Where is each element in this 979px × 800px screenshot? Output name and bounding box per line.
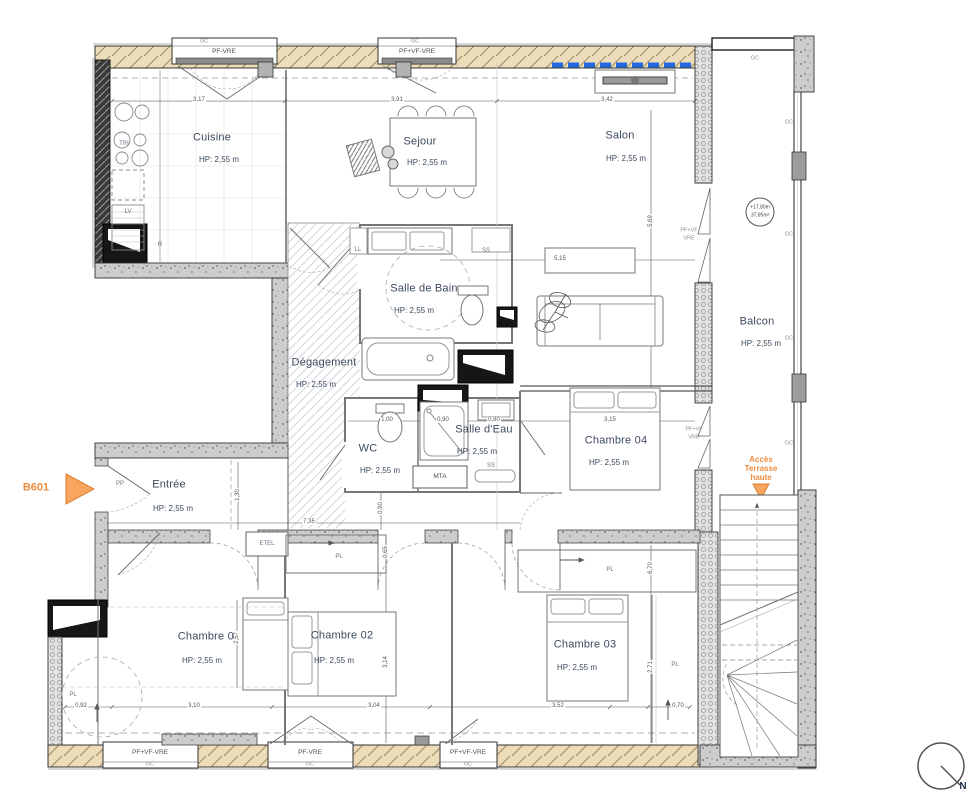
salon-furniture bbox=[534, 70, 675, 346]
ll-label: LL bbox=[355, 247, 362, 253]
window-label-bottom1: PF+VF-VRE bbox=[132, 750, 168, 757]
room-hp-salle-de-bain: HP: 2,55 m bbox=[394, 307, 434, 315]
level-area: 37,85m² bbox=[751, 214, 769, 219]
pp-label: PP bbox=[116, 481, 124, 487]
room-label-sejour: Sejour bbox=[404, 137, 437, 148]
room-label-chambre-04: Chambre 04 bbox=[585, 436, 648, 447]
dim-bottom-2: 3,10 bbox=[187, 703, 201, 709]
unit-entry-arrow bbox=[66, 474, 94, 504]
room-label-cuisine: Cuisine bbox=[193, 133, 231, 144]
window-label-bottom2: PF-VRE bbox=[298, 750, 322, 757]
room-hp-balcon: HP: 2,55 m bbox=[741, 340, 781, 348]
dim-v-hall: 0,90 bbox=[378, 501, 384, 515]
pl-label-ch03-right: PL bbox=[671, 662, 678, 668]
dim-v-ch02: 3,14 bbox=[383, 655, 389, 669]
staircase bbox=[698, 490, 816, 768]
room-hp-cuisine: HP: 2,55 m bbox=[199, 156, 239, 164]
level-altitude: +17,80m bbox=[750, 206, 770, 211]
room-hp-chambre-01: HP: 2,55 m bbox=[182, 657, 222, 665]
dim-top-2: 3,91 bbox=[390, 97, 404, 103]
room-label-entree: Entrée bbox=[152, 480, 186, 491]
floorplan-drawing bbox=[0, 0, 979, 800]
dim-v-entree: 1,30 bbox=[235, 488, 241, 502]
room-hp-sejour: HP: 2,55 m bbox=[407, 159, 447, 167]
room-label-degagement: Dégagement bbox=[292, 358, 357, 369]
room-hp-degagement: HP: 2,55 m bbox=[296, 381, 336, 389]
terrace-access-label: Accès Terrasse haute bbox=[745, 455, 778, 482]
mta-label: MTA bbox=[433, 474, 446, 481]
room-hp-chambre-03: HP: 2,55 m bbox=[557, 664, 597, 672]
window-label-bottom3: PF+VF-VRE bbox=[450, 750, 486, 757]
dim-bottom-5: 0,70 bbox=[671, 703, 685, 709]
dim-chambre04: 3,15 bbox=[603, 417, 617, 423]
north-compass bbox=[918, 743, 964, 789]
room-hp-wc: HP: 2,55 m bbox=[360, 467, 400, 475]
room-label-balcon: Balcon bbox=[740, 317, 775, 328]
room-label-salle-de-bain: Salle de Bain bbox=[390, 284, 457, 295]
dim-v-ch03-closet: 6,70 bbox=[648, 561, 654, 575]
room-label-chambre-02: Chambre 02 bbox=[311, 631, 374, 642]
dim-bottom-4: 3,52 bbox=[551, 703, 565, 709]
balcony-door1-label-line2: VRE bbox=[683, 236, 694, 242]
unit-number-label: B601 bbox=[23, 483, 49, 494]
dining-table bbox=[346, 106, 476, 198]
dim-v-salon: 5,69 bbox=[648, 214, 654, 228]
room-hp-salle-deau: HP: 2,55 m bbox=[457, 448, 497, 456]
dim-v-ch03: 2,71 bbox=[648, 660, 654, 674]
gc-label-right4: GC bbox=[785, 441, 793, 447]
room-hp-chambre-04: HP: 2,55 m bbox=[589, 459, 629, 467]
floorplan-page: Cuisine HP: 2,55 m Sejour HP: 2,55 m Sal… bbox=[0, 0, 979, 800]
ss-label-sdb: SS bbox=[482, 248, 490, 254]
dim-v-ch02-closet: 0,65 bbox=[383, 545, 389, 559]
dim-top-1: 3,17 bbox=[192, 97, 206, 103]
room-hp-entree: HP: 2,55 m bbox=[153, 505, 193, 513]
dim-hall: 7,35 bbox=[302, 519, 316, 525]
etel-label: ETEL bbox=[259, 541, 274, 547]
dim-shower-width: 0,90 bbox=[436, 417, 450, 423]
ss-label-sde: SS bbox=[487, 463, 495, 469]
balcony-door1-label-line1: PF+VF bbox=[680, 228, 697, 234]
pl-label-ch02: PL bbox=[335, 554, 342, 560]
terrace-access-line2: Terrasse bbox=[745, 464, 778, 473]
lv-label: LV bbox=[125, 209, 132, 215]
gc-label-bottom3: GC bbox=[464, 762, 472, 768]
tri-label: TRI bbox=[119, 141, 129, 147]
dim-v-ch01: 2,57 bbox=[234, 631, 240, 645]
dim-sde-width: 0,80 bbox=[487, 417, 501, 423]
balcony-door2-label-line1: PF+VF bbox=[685, 427, 702, 433]
room-label-salle-deau: Salle d'Eau bbox=[455, 425, 513, 436]
r-label: R bbox=[158, 242, 162, 248]
room-label-chambre-03: Chambre 03 bbox=[554, 640, 617, 651]
gc-label-right3: GC bbox=[785, 336, 793, 342]
pl-label-ch03-top: PL bbox=[606, 567, 613, 573]
balcony-door2-label-line2: VRE bbox=[688, 435, 699, 441]
dim-wc-width: 1,00 bbox=[380, 417, 394, 423]
north-label: N bbox=[959, 782, 966, 792]
gc-label-bottom1: GC bbox=[146, 762, 154, 768]
room-label-chambre-01: Chambre 01 bbox=[178, 632, 241, 643]
dim-bottom-3: 3,04 bbox=[367, 703, 381, 709]
dim-top-3: 3,42 bbox=[600, 97, 614, 103]
window-label-top2: PF+VF-VRE bbox=[399, 49, 435, 56]
gc-label-right1: GC bbox=[785, 120, 793, 126]
gc-label-top2: GC bbox=[411, 39, 419, 45]
terrace-access-line1: Accès bbox=[745, 455, 778, 464]
terrace-access-line3: haute bbox=[745, 473, 778, 482]
gc-label-right2: GC bbox=[785, 232, 793, 238]
window-label-top1: PF-VRE bbox=[212, 49, 236, 56]
pl-label-ch01: PL bbox=[69, 692, 76, 698]
dim-salon: 5,15 bbox=[553, 256, 567, 262]
gc-label-top1: GC bbox=[200, 39, 208, 45]
room-hp-chambre-02: HP: 2,55 m bbox=[314, 657, 354, 665]
dim-bottom-1: 0,92 bbox=[74, 703, 88, 709]
gc-label-bottom2: GC bbox=[306, 762, 314, 768]
bathroom-fixtures bbox=[350, 228, 517, 411]
room-hp-salon: HP: 2,55 m bbox=[606, 155, 646, 163]
room-label-wc: WC bbox=[359, 444, 378, 455]
gc-label-balcony-top: GC bbox=[751, 56, 759, 62]
room-label-salon: Salon bbox=[605, 131, 634, 142]
